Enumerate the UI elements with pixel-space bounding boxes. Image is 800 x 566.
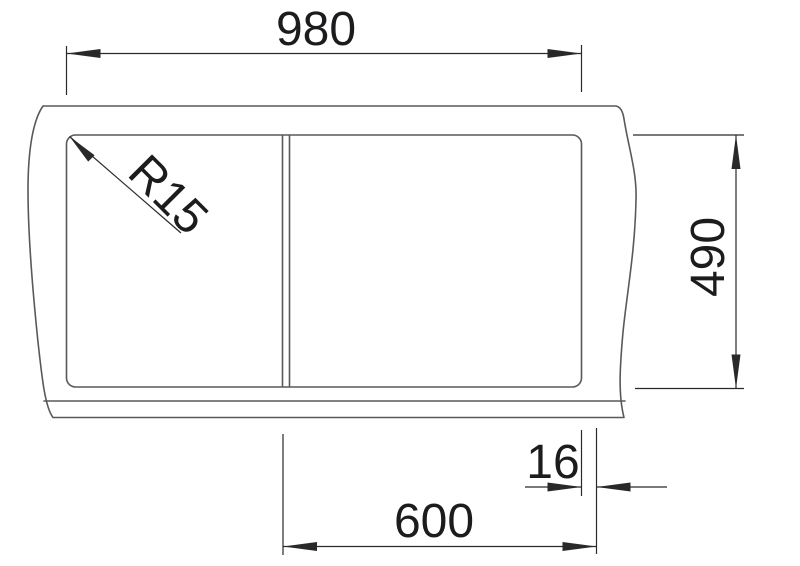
label-overall-depth: 490	[682, 217, 735, 297]
label-overall-width: 980	[276, 3, 356, 56]
sink-dimension-drawing: 980 490 16 600 R15	[0, 0, 800, 566]
dimension-arrows	[67, 49, 741, 551]
arrow-600-right	[563, 542, 597, 551]
label-corner-radius: R15	[118, 145, 218, 245]
arrow-980-right	[548, 49, 582, 58]
arrow-490-top	[732, 135, 741, 169]
arrow-16-right	[597, 483, 631, 492]
label-edge-offset: 16	[526, 436, 579, 489]
drawing-canvas: 980 490 16 600 R15	[0, 0, 800, 566]
dimension-labels: 980 490 16 600 R15	[118, 3, 735, 548]
arrow-r15-leader	[70, 137, 95, 162]
sink-outline	[28, 106, 636, 418]
dimension-lines	[67, 45, 745, 555]
arrow-600-left	[283, 542, 317, 551]
sink-outer-contour	[28, 106, 636, 418]
arrow-980-left	[67, 49, 101, 58]
label-bowl-section-width: 600	[394, 495, 474, 548]
arrow-490-bottom	[732, 355, 741, 389]
